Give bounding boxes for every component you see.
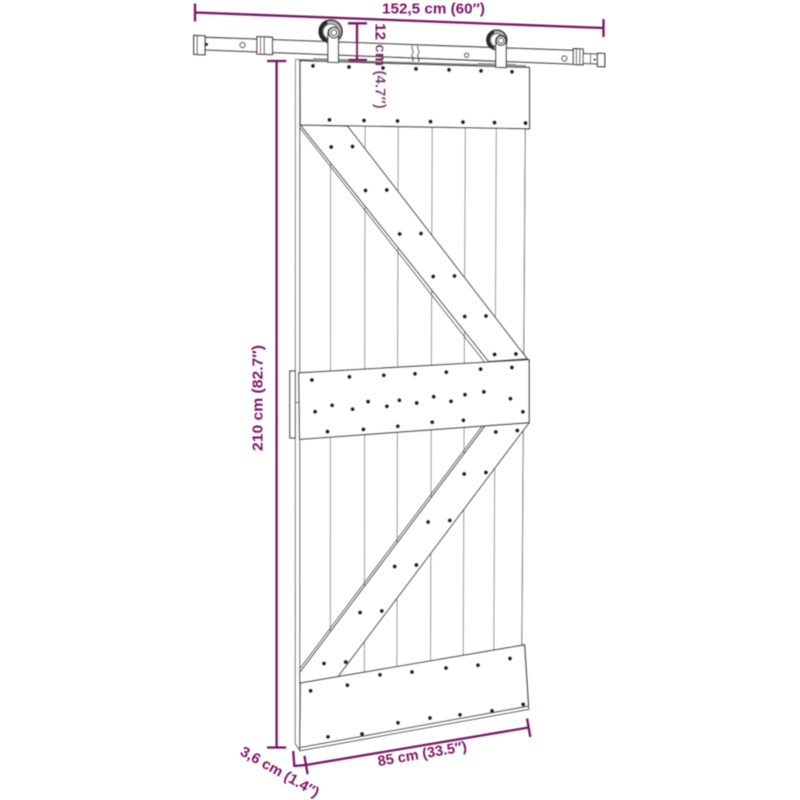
svg-text:12 cm (4.7″): 12 cm (4.7″) <box>372 23 388 109</box>
svg-text:152,5 cm (60″): 152,5 cm (60″) <box>382 2 485 18</box>
svg-text:210 cm (82.7″): 210 cm (82.7″) <box>251 345 267 451</box>
